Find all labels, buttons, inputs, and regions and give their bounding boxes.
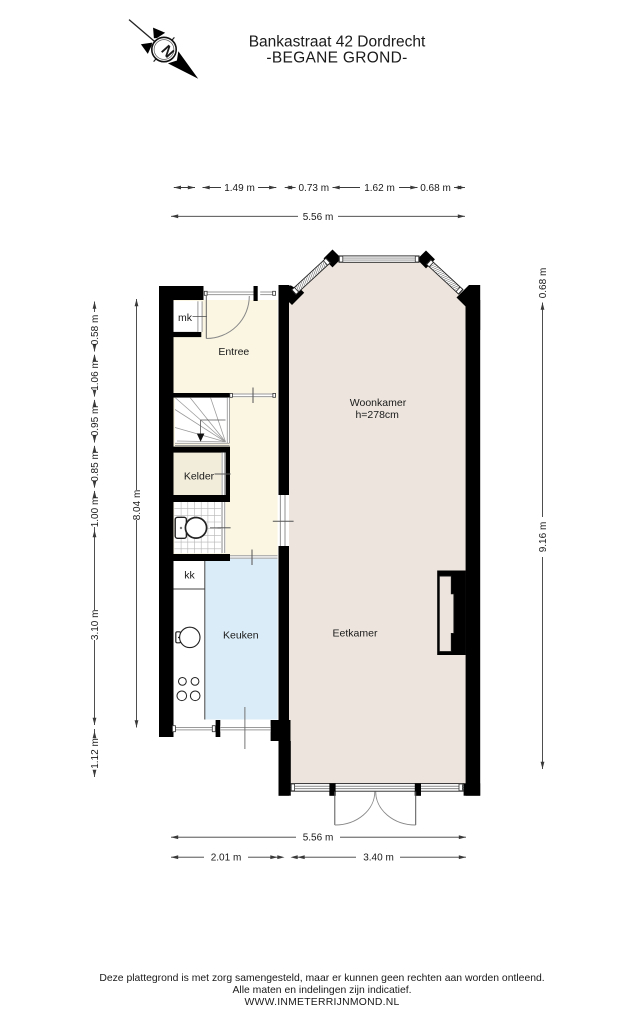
svg-text:0.58 m: 0.58 m xyxy=(90,315,101,346)
svg-text:3.10 m: 3.10 m xyxy=(90,610,101,641)
svg-text:Kelder: Kelder xyxy=(184,470,215,482)
svg-text:0.95 m: 0.95 m xyxy=(90,406,101,437)
svg-text:kk: kk xyxy=(184,570,195,582)
svg-text:1.62 m: 1.62 m xyxy=(364,183,395,194)
svg-text:Bankastraat 42 Dordrecht: Bankastraat 42 Dordrecht xyxy=(249,34,426,51)
svg-text:Alle maten en indelingen zijn: Alle maten en indelingen zijn indicatief… xyxy=(232,985,411,996)
svg-text:Woonkamer: Woonkamer xyxy=(350,397,407,409)
svg-text:Eetkamer: Eetkamer xyxy=(333,628,378,640)
svg-text:1.00 m: 1.00 m xyxy=(90,497,101,528)
svg-text:WWW.INMETERRIJNMOND.NL: WWW.INMETERRIJNMOND.NL xyxy=(245,997,400,1008)
svg-text:0.68 m: 0.68 m xyxy=(420,183,451,194)
svg-text:mk: mk xyxy=(178,312,193,324)
svg-text:0.68 m: 0.68 m xyxy=(538,268,549,299)
svg-text:5.56 m: 5.56 m xyxy=(303,212,334,223)
svg-text:0.73 m: 0.73 m xyxy=(299,183,330,194)
svg-text:h=278cm: h=278cm xyxy=(355,409,399,421)
svg-text:1.49 m: 1.49 m xyxy=(224,183,255,194)
svg-text:1.12 m: 1.12 m xyxy=(90,738,101,769)
svg-text:Keuken: Keuken xyxy=(223,629,259,641)
svg-text:2.01 m: 2.01 m xyxy=(211,853,242,864)
svg-text:3.40 m: 3.40 m xyxy=(363,853,394,864)
svg-text:9.16 m: 9.16 m xyxy=(538,522,549,553)
svg-text:0.85 m: 0.85 m xyxy=(90,451,101,482)
svg-text:1.06 m: 1.06 m xyxy=(90,360,101,391)
svg-text:8.04 m: 8.04 m xyxy=(132,490,143,521)
svg-text:Deze plattegrond is met zorg s: Deze plattegrond is met zorg samengestel… xyxy=(99,973,544,984)
svg-text:Entree: Entree xyxy=(218,346,249,358)
svg-text:5.56 m: 5.56 m xyxy=(303,833,334,844)
svg-text:-BEGANE GROND-: -BEGANE GROND- xyxy=(266,50,407,67)
